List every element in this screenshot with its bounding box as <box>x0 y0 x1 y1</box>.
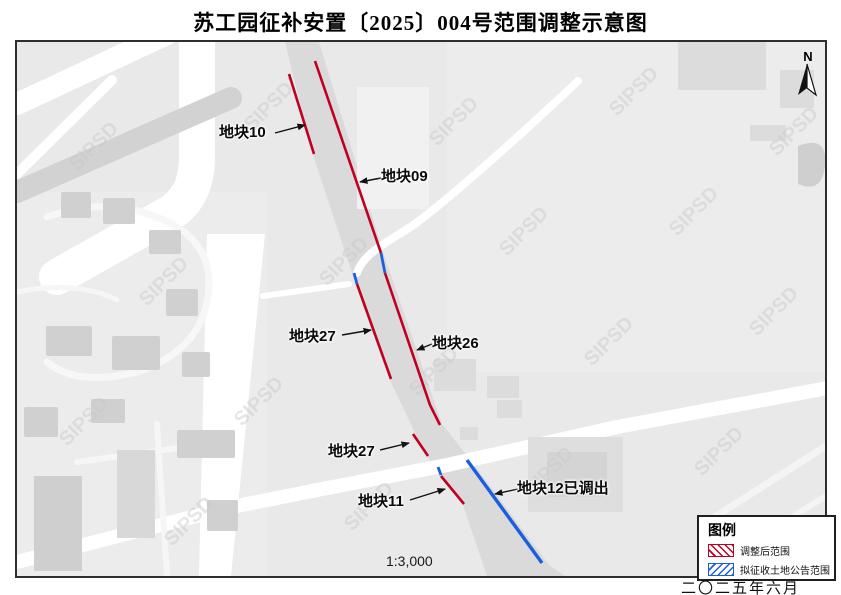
parcel-label-11: 地块11 <box>358 490 404 511</box>
parcel-label-09: 地块09 <box>381 165 428 186</box>
basemap-svg: SIPSD SIPSD SIPSD SIPSD SIPSD SIPSD SIPS… <box>17 42 825 576</box>
legend-item-proposed: 拟征收土地公告范围 <box>708 562 834 577</box>
legend: 图例 调整后范围 拟征收土地公告范围 <box>697 515 836 581</box>
adjusted-range-swatch <box>708 544 734 557</box>
parcel-label-27a: 地块27 <box>289 325 336 346</box>
legend-item-label: 调整后范围 <box>740 543 790 558</box>
date-text: 二〇二五年六月 <box>640 577 800 595</box>
proposed-range-swatch <box>708 563 734 576</box>
parcel-label-10: 地块10 <box>219 121 266 142</box>
legend-title: 图例 <box>708 520 834 540</box>
legend-item-label: 拟征收土地公告范围 <box>740 562 830 577</box>
parcel-label-26: 地块26 <box>432 332 479 353</box>
scale-text: 1:3,000 <box>386 553 433 569</box>
north-label: N <box>803 49 812 64</box>
parcel-label-27b: 地块27 <box>328 440 375 461</box>
page: 苏工园征补安置〔2025〕004号范围调整示意图 <box>0 0 841 595</box>
parcel-label-12: 地块12已调出 <box>517 477 609 498</box>
legend-item-adjusted: 调整后范围 <box>708 543 834 558</box>
map-canvas: SIPSD SIPSD SIPSD SIPSD SIPSD SIPSD SIPS… <box>15 40 827 578</box>
map-title: 苏工园征补安置〔2025〕004号范围调整示意图 <box>0 7 841 37</box>
